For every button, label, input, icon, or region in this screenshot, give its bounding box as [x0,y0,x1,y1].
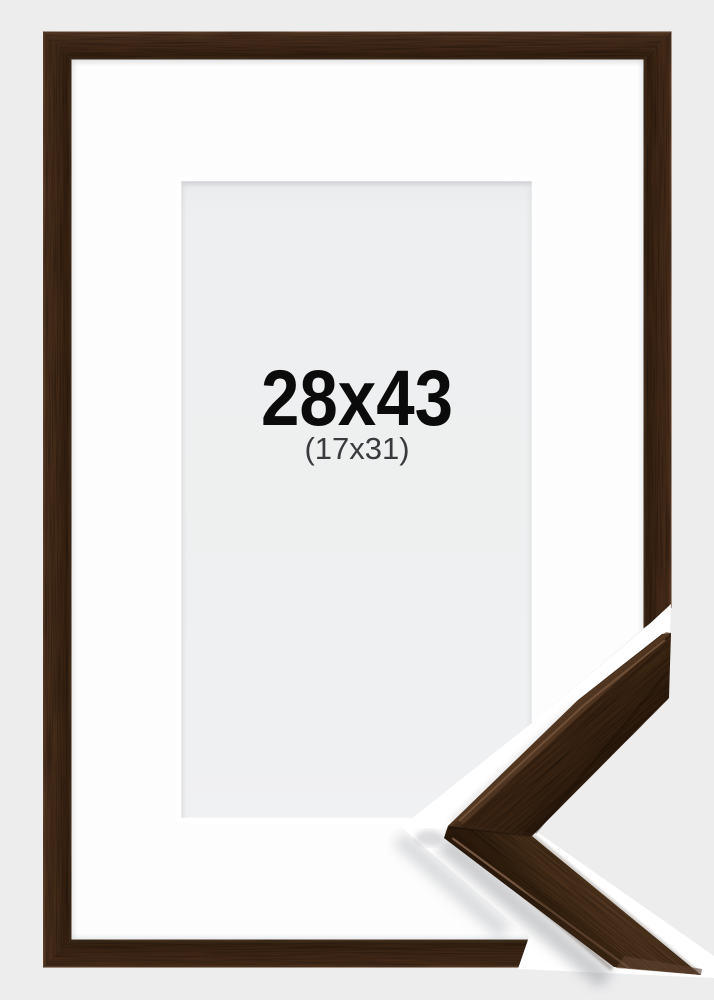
svg-text:28x43: 28x43 [261,353,453,442]
svg-text:(17x31): (17x31) [304,431,409,466]
